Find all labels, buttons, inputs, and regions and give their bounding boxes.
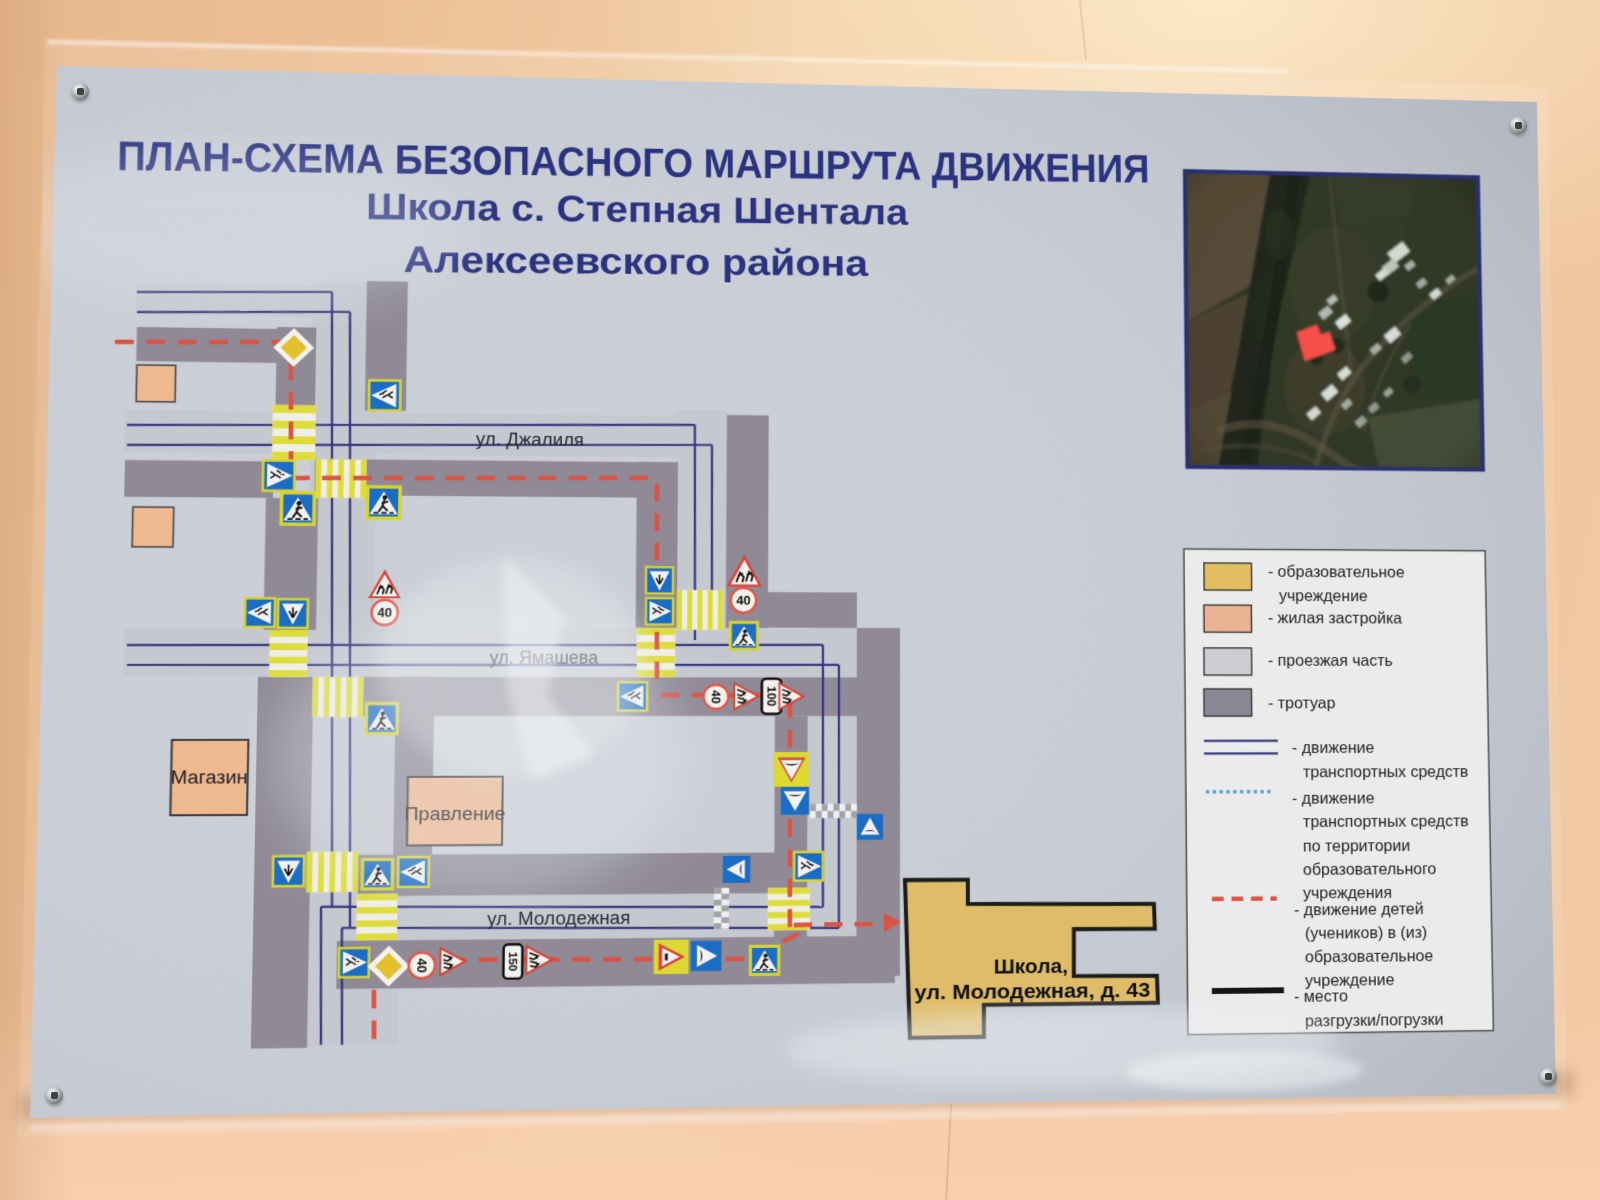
svg-text:Школа,: Школа, <box>994 954 1068 978</box>
svg-text:- движение: - движение <box>1292 739 1375 757</box>
svg-text:- движение детей: - движение детей <box>1294 900 1424 919</box>
svg-text:образовательного: образовательного <box>1303 859 1437 878</box>
svg-text:учреждение: учреждение <box>1279 587 1368 605</box>
svg-text:- место: - место <box>1294 987 1348 1006</box>
svg-text:(учеников) в (из): (учеников) в (из) <box>1305 923 1428 942</box>
svg-text:- жилая застройка: - жилая застройка <box>1268 609 1403 628</box>
svg-text:транспортных средств: транспортных средств <box>1303 762 1469 781</box>
svg-text:разгрузки/погрузки: разгрузки/погрузки <box>1305 1010 1444 1030</box>
svg-text:ул. Молодежная: ул. Молодежная <box>487 908 631 930</box>
svg-text:- движение: - движение <box>1292 789 1375 808</box>
svg-text:по территории: по территории <box>1303 836 1410 855</box>
svg-text:- проезжая часть: - проезжая часть <box>1268 652 1393 670</box>
svg-text:ул. Молодежная, д. 43: ул. Молодежная, д. 43 <box>914 978 1150 1004</box>
svg-text:- тротуар: - тротуар <box>1268 694 1336 712</box>
svg-text:Алексеевского района: Алексеевского района <box>403 239 868 284</box>
svg-text:транспортных средств: транспортных средств <box>1303 812 1469 831</box>
svg-text:образовательное: образовательное <box>1305 946 1433 966</box>
svg-text:ул. Джалиля: ул. Джалиля <box>476 430 584 451</box>
svg-text:- образовательное: - образовательное <box>1268 563 1405 582</box>
svg-text:Магазин: Магазин <box>170 768 248 789</box>
